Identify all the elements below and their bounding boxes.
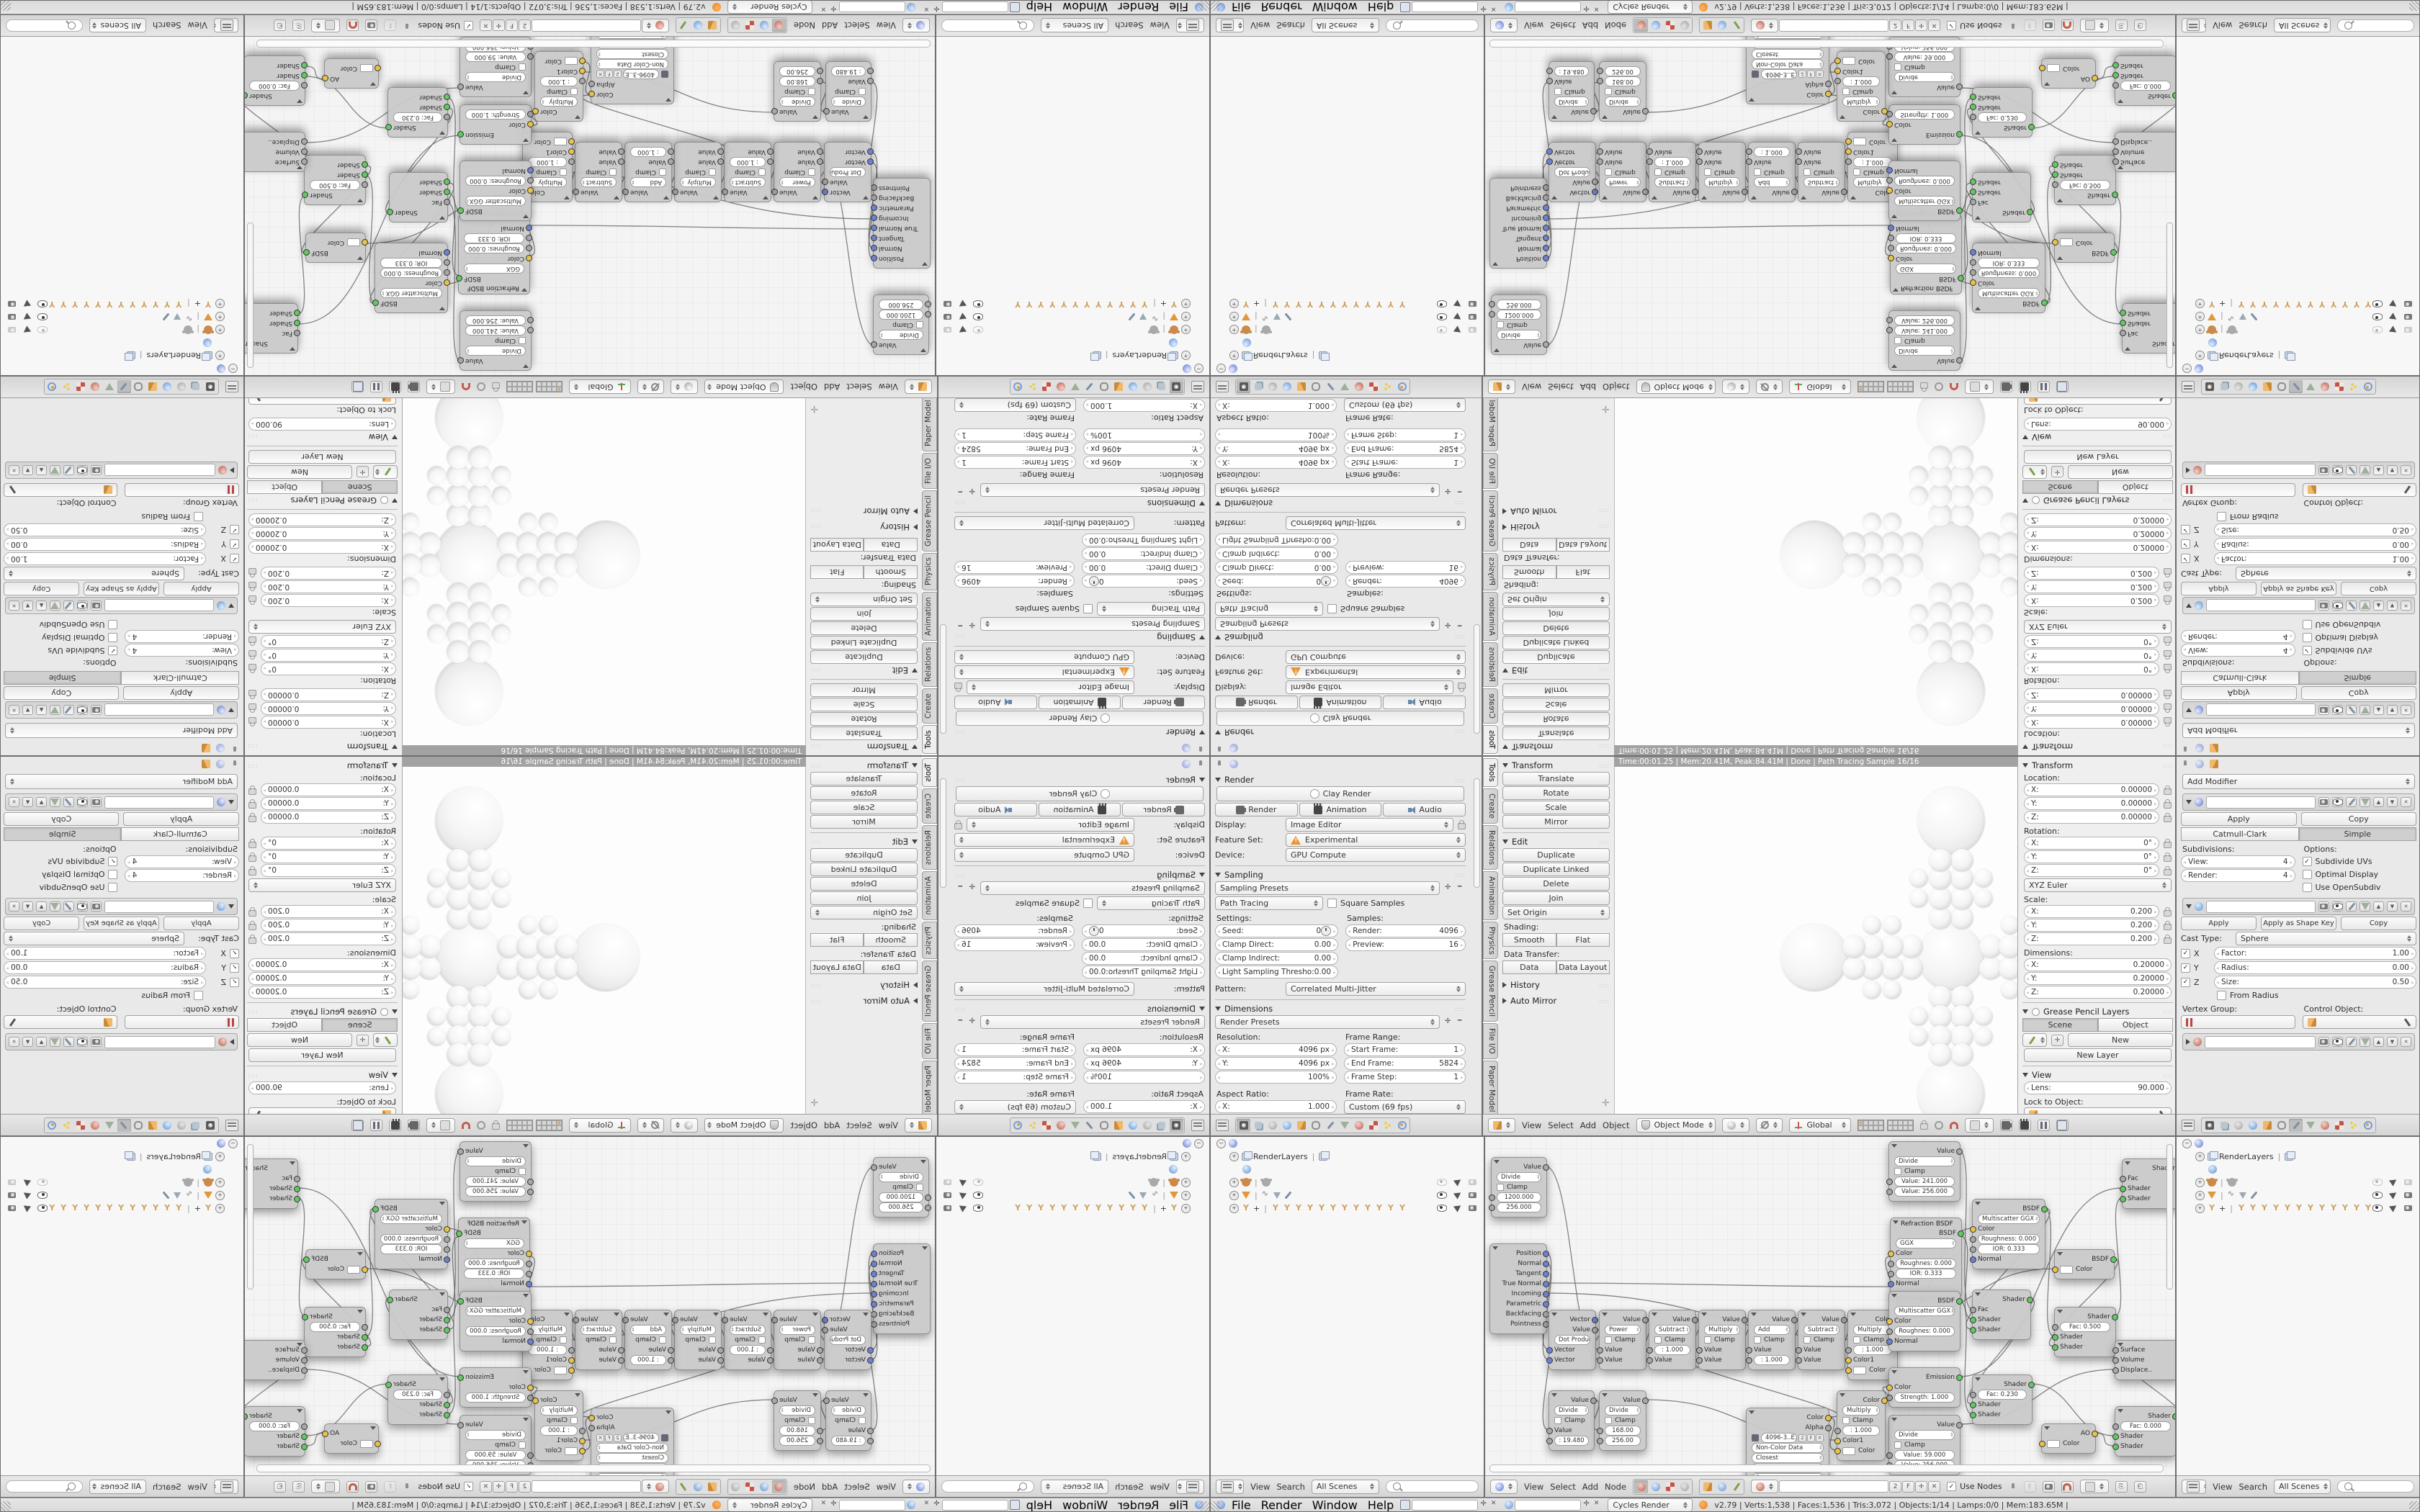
object-tab[interactable] <box>1112 1119 1126 1132</box>
node-select[interactable]: Subtract⇕ <box>730 177 766 187</box>
rotation-order-select[interactable]: XYZ Euler <box>248 620 396 634</box>
tool-shelf-tab-file-i-o[interactable]: File I/O <box>1483 453 1498 489</box>
physics-tab[interactable] <box>1011 1119 1025 1132</box>
device-select[interactable]: GPU Compute <box>954 848 1134 862</box>
number-slider[interactable]: End Frame:5824 <box>954 1057 1076 1070</box>
expand-icon[interactable]: + <box>2195 1152 2205 1161</box>
menu-select[interactable]: Select <box>1548 1120 1573 1130</box>
node-select[interactable]: Power⇕ <box>779 1325 815 1335</box>
editor-type-select[interactable] <box>905 1118 932 1133</box>
node-mdivv[interactable]: ValueDivide⇕ClampValue: 19.480 <box>825 1390 871 1451</box>
pivot-select[interactable] <box>1756 1118 1783 1133</box>
node-slider[interactable]: Roughnes: 0.000 <box>464 243 524 253</box>
number-slider[interactable]: Z:0.20000 <box>2024 986 2172 999</box>
restrict-toggle-icon[interactable] <box>944 301 951 307</box>
node-mixA[interactable]: ShaderFacShaderShader <box>1972 1290 2031 1340</box>
outliner-row[interactable] <box>936 1163 1209 1176</box>
set-origin-button[interactable]: Set Origin <box>1502 906 1610 919</box>
number-slider[interactable]: Seed:0 <box>1215 924 1338 937</box>
orientation-select[interactable]: Global <box>569 380 631 395</box>
restrict-toggle-icon[interactable] <box>973 313 983 320</box>
physics-tab[interactable] <box>45 381 59 394</box>
menu-view[interactable]: View <box>877 1482 896 1492</box>
node-slider[interactable]: Value: 59.000 <box>1894 1450 1955 1460</box>
world-tab[interactable] <box>1126 381 1140 394</box>
rotation-order-select[interactable]: XYZ Euler <box>2024 620 2172 634</box>
number-slider[interactable]: Render:4 <box>2181 630 2295 643</box>
duplicate-linked-button[interactable]: Duplicate Linked <box>1502 636 1610 649</box>
node-slider[interactable]: Roughnes: 0.000 <box>465 176 526 186</box>
menu-node[interactable]: Node <box>794 1482 815 1492</box>
number-slider[interactable]: Size:0.50 <box>4 523 206 536</box>
section-header[interactable]: Sampling:::: <box>954 870 1205 880</box>
tool-shelf-tab-physics[interactable]: Physics <box>1483 553 1498 591</box>
modifier-header[interactable]: ▲▼✕ <box>5 898 238 915</box>
modifier-name-field[interactable] <box>2206 901 2316 913</box>
axis-z-checkbox[interactable]: ✓Z <box>2181 526 2210 535</box>
expand-icon[interactable]: + <box>1229 1178 1239 1187</box>
subdivide-uvs-checkbox[interactable]: ✓Subdivide UVs <box>2303 644 2417 657</box>
layers-widget[interactable] <box>1857 382 1914 393</box>
texture-tab[interactable] <box>1040 381 1054 394</box>
snap-element-select[interactable] <box>426 380 455 395</box>
section-header[interactable]: Render:::: <box>954 727 1205 737</box>
number-slider[interactable]: Y:4096 px <box>1215 1057 1337 1070</box>
menu-render[interactable]: Render <box>1261 1 1302 14</box>
pin-icon[interactable] <box>2181 744 2190 752</box>
gp-tab-object[interactable]: Object <box>2098 1018 2174 1032</box>
snap-mode-select[interactable] <box>311 1480 340 1493</box>
shading-select[interactable] <box>1722 380 1749 395</box>
delete-modifier-button[interactable]: ✕ <box>2401 1037 2411 1047</box>
menu-add[interactable]: Add <box>824 382 840 392</box>
number-slider[interactable]: End Frame:5824 <box>954 442 1076 455</box>
display-toggle[interactable] <box>91 600 102 611</box>
magnet-button[interactable] <box>2061 20 2074 32</box>
tool-shelf-tab-tools[interactable]: Tools <box>1483 725 1498 754</box>
outliner-row[interactable] <box>2177 336 2419 349</box>
number-slider[interactable]: Z:0.00000 <box>261 811 396 824</box>
use-nodes-checkbox[interactable]: ✓Use Nodes <box>418 1482 473 1491</box>
apply-as-shape-key-button[interactable]: Apply as Shape Key <box>2261 917 2336 930</box>
number-slider[interactable]: Z:0.200 <box>261 932 396 945</box>
tool-shelf-tab-animation[interactable]: Animation <box>922 871 937 920</box>
mode-select[interactable]: Object Mode <box>704 380 784 395</box>
delete-button[interactable]: Delete <box>1502 877 1610 891</box>
axis-z-checkbox[interactable]: ✓Z <box>2181 978 2210 987</box>
pattern-select[interactable]: Correlated Multi-Jitter <box>1286 982 1466 996</box>
node-val1200[interactable]: ValueDivide⇕Clamp1200.000256.000 <box>1491 294 1547 355</box>
display-toggle[interactable] <box>2359 465 2370 475</box>
tree-type-world[interactable] <box>1649 19 1662 32</box>
outliner-row[interactable]: +| <box>2177 1176 2419 1189</box>
node-slider[interactable]: Value: 241.000 <box>1894 1176 1955 1187</box>
node-mmul[interactable]: ValueMultiply⇕ClampValueValue <box>674 142 722 202</box>
apply-button[interactable]: Apply <box>2181 686 2297 700</box>
screen-name-field[interactable] <box>942 1500 1008 1511</box>
node-output[interactable]: SurfaceVolumeDisplace.. <box>2115 132 2176 172</box>
node-slider[interactable]: 256.000 <box>1497 300 1541 310</box>
number-slider[interactable]: Seed:0 <box>1082 924 1205 937</box>
display-toggle[interactable] <box>91 465 102 475</box>
fake-user-button[interactable]: F <box>1902 1481 1914 1493</box>
node-output[interactable]: SurfaceVolumeDisplace.. <box>244 132 305 172</box>
node-slider[interactable]: Roughnes: 0.000 <box>1894 176 1955 186</box>
node-mixrgb2[interactable]: ColorMultiply⇕Clamp: 1.000Color1Color <box>534 1390 583 1461</box>
node-mmul[interactable]: ValueMultiply⇕ClampValueValue <box>1698 142 1746 202</box>
node-slider[interactable]: Fac: 0.230 <box>1978 112 2027 122</box>
render-tab[interactable] <box>1170 1119 1183 1132</box>
modifiers-tab[interactable] <box>2289 381 2303 394</box>
shader-type-world[interactable] <box>1715 1480 1729 1493</box>
use-opensubdiv-checkbox[interactable]: Use OpenSubdiv <box>2303 881 2417 894</box>
clapper-button[interactable] <box>389 1120 401 1131</box>
particles-tab[interactable] <box>2347 1119 2360 1132</box>
expand-icon[interactable]: − <box>1194 1139 1204 1148</box>
expand-icon[interactable]: − <box>2182 364 2192 374</box>
tool-shelf-tab-grease-pencil[interactable]: Grease Pencil <box>922 960 937 1022</box>
restrict-toggle-icon[interactable] <box>1437 1179 1447 1186</box>
gp-brush-select[interactable] <box>2022 1033 2047 1047</box>
number-slider[interactable]: Y:0.00000 <box>261 797 396 810</box>
node-select[interactable]: Power⇕ <box>779 177 815 187</box>
outliner-row[interactable]: ++| <box>936 297 1209 310</box>
unlink-button[interactable]: ✕ <box>1816 71 1824 78</box>
mirror-button[interactable]: Mirror <box>810 683 918 697</box>
tool-shelf-tab-tools[interactable]: Tools <box>922 725 937 754</box>
move-modifier-button[interactable]: ▼ <box>22 705 33 715</box>
menu-window[interactable]: Window <box>1062 1498 1108 1512</box>
display-toggle[interactable] <box>2359 1037 2370 1047</box>
particles-tab[interactable] <box>1026 1119 1039 1132</box>
number-slider[interactable]: X:0.20000 <box>2024 958 2172 971</box>
node-val1200[interactable]: ValueDivide⇕Clamp1200.000256.000 <box>873 1157 929 1218</box>
number-slider[interactable]: X:0.200 <box>261 594 396 607</box>
gp-add-button[interactable]: ✛ <box>357 467 369 478</box>
menu-object[interactable]: Object <box>1603 382 1629 392</box>
node-slider[interactable]: Fac: 0.230 <box>393 1390 442 1400</box>
number-slider[interactable]: Render:4 <box>125 630 240 643</box>
scale-button[interactable]: Scale <box>810 801 918 814</box>
node-slider[interactable]: : 19.480 <box>831 1436 866 1446</box>
restrict-toggle-icon[interactable] <box>2404 314 2412 320</box>
number-slider[interactable]: Clamp Direct:0.00 <box>1082 938 1205 951</box>
copy-paste-button[interactable]: ⎘ <box>292 20 305 32</box>
move-modifier-button[interactable]: ▲ <box>2373 600 2384 611</box>
restrict-toggle-icon[interactable] <box>2404 301 2412 307</box>
node-slider[interactable]: 256.00 <box>1605 1436 1641 1446</box>
modifier-name-field[interactable] <box>104 600 214 612</box>
modifier-name-field[interactable] <box>104 464 215 477</box>
node-msub1[interactable]: ValueSubtract⇕Clamp: 1.000Value <box>724 1310 771 1370</box>
node-glass2[interactable]: BSDFMultiscatter GGX⇕ColorRoughnes: 0.00… <box>460 161 532 221</box>
scene-tab[interactable] <box>2231 381 2245 394</box>
number-slider[interactable]: X:0.20000 <box>248 541 396 554</box>
collapsed-panel-history[interactable]: History:::: <box>1502 980 1610 990</box>
clapper-button[interactable] <box>2019 382 2031 393</box>
unlink-button[interactable]: ✕ <box>596 1434 604 1442</box>
screen-button[interactable] <box>2056 382 2069 393</box>
number-slider[interactable]: Frame Step:1 <box>1344 428 1466 441</box>
display-toggle[interactable] <box>91 1037 102 1047</box>
search-field[interactable] <box>941 1480 1034 1493</box>
section-header[interactable]: Sampling:::: <box>954 632 1205 642</box>
move-modifier-button[interactable]: ▼ <box>2387 901 2398 912</box>
screen-name-field[interactable] <box>942 2 1008 13</box>
fake-user-button[interactable]: F <box>506 1481 518 1493</box>
scene-tab[interactable] <box>175 1119 189 1132</box>
node-emission[interactable]: EmissionColorStrength: 1.000 <box>1888 104 1960 145</box>
outliner-row[interactable]: − <box>2177 362 2419 375</box>
delete-button[interactable]: Delete <box>810 621 918 635</box>
node-hscrollbar[interactable] <box>256 1464 931 1472</box>
restrict-toggle-icon[interactable] <box>1437 300 1447 307</box>
expand-icon[interactable]: + <box>2195 351 2205 361</box>
menu-view[interactable]: View <box>1150 21 1170 31</box>
modifier-header[interactable]: ▲▼✕ <box>2182 597 2415 614</box>
number-slider[interactable]: View:4 <box>125 644 240 657</box>
snap-element-select[interactable] <box>1965 1118 1994 1133</box>
node-select[interactable]: Subtract⇕ <box>1803 1325 1839 1335</box>
move-modifier-button[interactable]: ▼ <box>2387 705 2398 715</box>
add-icon[interactable] <box>932 3 941 12</box>
outliner-row[interactable]: +| <box>1 310 243 323</box>
delete-modifier-button[interactable]: ✕ <box>9 797 19 807</box>
data-tab[interactable] <box>1069 381 1083 394</box>
apply-button[interactable]: Apply <box>124 686 240 700</box>
number-slider[interactable]: Y:0.20000 <box>2024 972 2172 985</box>
number-slider[interactable]: Render:4 <box>125 869 240 882</box>
expand-icon[interactable]: + <box>2195 325 2205 335</box>
node-slider[interactable]: : 19.480 <box>1554 1436 1589 1446</box>
close-icon[interactable] <box>922 1500 931 1509</box>
number-slider[interactable]: X:1.000 <box>1215 399 1337 412</box>
screen-name-field[interactable] <box>1412 1500 1478 1511</box>
tool-shelf-tab-animation[interactable]: Animation <box>1483 871 1498 920</box>
pause-button[interactable] <box>370 382 382 393</box>
display-toggle[interactable] <box>2318 901 2329 912</box>
modifier-header[interactable]: ▲▼✕ <box>5 597 238 614</box>
number-slider[interactable]: Z:0° <box>2024 635 2159 648</box>
delete-modifier-button[interactable]: ✕ <box>2401 465 2411 475</box>
node-select[interactable]: GGX⇕ <box>1896 1238 1956 1248</box>
pin-icon[interactable] <box>230 760 239 768</box>
number-slider[interactable]: Clamp Indirect:0.00 <box>1215 952 1338 965</box>
material-tab[interactable] <box>1054 1119 1068 1132</box>
node-slider[interactable]: : 1.000 <box>528 157 567 167</box>
section-header[interactable]: Edit:::: <box>1502 665 1610 675</box>
properties-scrollbar[interactable] <box>940 624 946 734</box>
render-presets-select[interactable]: Render Presets <box>980 483 1205 497</box>
menu-select[interactable]: Select <box>1550 1482 1575 1492</box>
material-tab[interactable] <box>89 381 102 394</box>
node-select[interactable]: Divide⇕ <box>831 1405 866 1416</box>
pin-icon[interactable] <box>1196 760 1205 768</box>
editor-type-icon[interactable] <box>225 1120 238 1131</box>
node-mixrgb2[interactable]: ColorMultiply⇕Clamp: 1.000Color1Color <box>534 51 583 122</box>
number-slider[interactable]: Y:4096 px <box>1215 442 1337 455</box>
node-refr[interactable]: Refraction BSDFBSDFGGX⇕ColorRoughnes: 0.… <box>458 1218 530 1297</box>
node-mdivv[interactable]: ValueDivide⇕ClampValue: 19.480 <box>1549 1390 1595 1451</box>
close-icon[interactable] <box>819 1500 828 1509</box>
node-slider[interactable]: 168.00 <box>779 76 815 86</box>
move-modifier-button[interactable]: ▲ <box>36 797 47 807</box>
restrict-toggle-icon[interactable] <box>2389 300 2398 308</box>
move-modifier-button[interactable]: ▼ <box>2387 465 2398 475</box>
flat-button[interactable]: Flat <box>1556 933 1610 947</box>
number-slider[interactable]: Clamp Direct:0.00 <box>1082 561 1205 574</box>
restrict-toggle-icon[interactable] <box>973 1205 983 1212</box>
render-tab[interactable] <box>1237 381 1250 394</box>
copy-button[interactable]: Copy <box>4 812 120 826</box>
menu-view[interactable]: View <box>877 21 896 31</box>
delete-modifier-button[interactable]: ✕ <box>9 705 19 715</box>
menu-search[interactable]: Search <box>2238 21 2267 31</box>
close-icon[interactable] <box>819 3 828 12</box>
tool-shelf-tab-file-i-o[interactable]: File I/O <box>922 453 937 489</box>
section-header[interactable]: Edit:::: <box>1502 837 1610 847</box>
expand-icon[interactable]: + <box>1181 312 1191 322</box>
node-bsdfP[interactable]: BSDFColor <box>2054 1249 2115 1279</box>
node-slider[interactable]: IOR: 0.333 <box>1896 1269 1956 1279</box>
number-slider[interactable]: Start Frame:1 <box>1344 1043 1466 1056</box>
translate-button[interactable]: Translate <box>1502 772 1610 786</box>
editor-type-select[interactable] <box>1488 380 1515 395</box>
number-slider[interactable]: X:4096 px <box>1083 456 1205 469</box>
outliner-row[interactable]: − <box>1 1137 243 1150</box>
collapsed-panel-history[interactable]: History:::: <box>810 980 918 990</box>
square-samples-checkbox[interactable]: Square Samples <box>1327 899 1404 908</box>
number-slider[interactable]: X:1.000 <box>1083 399 1205 412</box>
number-slider[interactable]: Seed:0 <box>1082 575 1205 588</box>
pin-icon[interactable] <box>2009 1482 2017 1491</box>
set-origin-button[interactable]: Set Origin <box>810 906 918 919</box>
number-slider[interactable]: X:1.000 <box>1083 1100 1205 1113</box>
restrict-toggle-icon[interactable] <box>1437 1205 1447 1212</box>
physics-tab[interactable] <box>2361 381 2375 394</box>
node-slider[interactable]: Roughness: 0.000 <box>380 1234 442 1244</box>
outliner-row[interactable]: +| <box>1 1176 243 1189</box>
menu-search[interactable]: Search <box>1115 21 1144 31</box>
section-header[interactable]: Transform:::: <box>1502 760 1610 770</box>
object-tab[interactable] <box>2260 1119 2274 1132</box>
tree-type-world[interactable] <box>758 19 771 32</box>
menu-view[interactable]: View <box>1524 21 1543 31</box>
render-button[interactable]: Render <box>1215 803 1298 816</box>
display-toggle[interactable] <box>2359 901 2370 912</box>
node-mixA[interactable]: ShaderFacShaderShader <box>389 1290 448 1340</box>
outliner-row[interactable]: − <box>936 1137 1209 1150</box>
shader-type-pencil[interactable] <box>677 1480 691 1493</box>
shader-type-world[interactable] <box>691 1480 705 1493</box>
clay-render-button[interactable]: Clay Render <box>1216 711 1464 726</box>
fake-user-button[interactable]: F <box>1807 1434 1815 1442</box>
camera2-button[interactable] <box>365 1481 377 1493</box>
copy-button[interactable]: Copy <box>2301 812 2417 826</box>
properties-scrollbar[interactable] <box>940 778 946 888</box>
menu-select[interactable]: Select <box>1550 21 1575 31</box>
data-layout-button[interactable]: Data Layout <box>1556 538 1610 552</box>
section-header[interactable]: Edit:::: <box>810 837 918 847</box>
featureset-select[interactable]: Experimental <box>954 665 1134 679</box>
display-toggle[interactable] <box>2332 797 2343 807</box>
tool-shelf-tab-paper-model[interactable]: Paper Model <box>922 1061 937 1117</box>
expand-icon[interactable]: + <box>2195 312 2205 322</box>
section-header[interactable]: Grease Pencil Layers:::: <box>247 495 398 505</box>
node-select[interactable]: Multiscatter GGX⇕ <box>465 1306 526 1316</box>
lens-slider[interactable]: Lens:90.000 <box>2024 418 2172 431</box>
display-select[interactable]: Image Editor <box>967 680 1134 694</box>
material-datablock[interactable]: 2F✛✕ <box>1751 1480 1940 1493</box>
move-modifier-button[interactable]: ▲ <box>2373 465 2384 475</box>
number-slider[interactable]: Size:0.50 <box>4 976 206 989</box>
use-opensubdiv-checkbox[interactable]: Use OpenSubdiv <box>2303 618 2417 631</box>
image-name-field[interactable]: 4096-3..E.. <box>1761 1433 1797 1443</box>
node-select[interactable]: Non-Color Data⇕ <box>1752 1443 1824 1453</box>
restrict-toggle-icon[interactable] <box>944 1179 951 1185</box>
screen-layout-selector[interactable] <box>1400 2 1498 13</box>
menu-render[interactable]: Render <box>1118 1 1159 14</box>
copy-paste-button[interactable]: ⎗ <box>274 20 286 32</box>
outliner-row[interactable]: +| <box>936 310 1209 323</box>
cast-type-select[interactable]: Sphere <box>4 932 184 945</box>
add-material-button[interactable]: ✛ <box>1915 1481 1927 1493</box>
outliner-row[interactable] <box>2177 1163 2419 1176</box>
menu-search[interactable]: Search <box>153 21 181 31</box>
node-hscrollbar[interactable] <box>1489 40 2164 48</box>
subdiv-type-simple[interactable]: Simple <box>2299 827 2417 841</box>
from-radius-checkbox[interactable]: From Radius <box>2217 512 2415 521</box>
restrict-toggle-icon[interactable] <box>2389 1204 2398 1212</box>
texture-tab[interactable] <box>74 1119 88 1132</box>
menu-help[interactable]: Help <box>1368 1498 1394 1512</box>
outliner-row[interactable]: +| <box>1211 1189 1484 1202</box>
node-madd[interactable]: ValueAdd⇕ClampValue: 1.000 <box>1748 1310 1796 1370</box>
copy-paste-button[interactable]: ⎘ <box>2115 1481 2128 1493</box>
display-toggle[interactable] <box>2359 797 2370 807</box>
restrict-toggle-icon[interactable] <box>1453 312 1462 321</box>
pivot-select[interactable] <box>637 1118 664 1133</box>
outliner-row[interactable]: +| <box>936 323 1209 336</box>
menu-file[interactable]: File <box>1232 1 1251 14</box>
data-tab[interactable] <box>1069 1119 1083 1132</box>
duplicate-linked-button[interactable]: Duplicate Linked <box>810 636 918 649</box>
users-count[interactable]: 2 <box>614 1434 622 1442</box>
add-modifier-select[interactable]: Add Modifier <box>2182 774 2415 789</box>
data-tab[interactable] <box>1337 381 1351 394</box>
go-parent-button[interactable]: ⇧ <box>2024 1481 2036 1493</box>
node-mixB500[interactable]: ShaderFac: 0.500ShaderShader <box>2054 1307 2116 1357</box>
restrict-toggle-icon[interactable] <box>944 1192 951 1198</box>
menu-search[interactable]: Search <box>1115 1482 1144 1492</box>
node-select[interactable]: Power⇕ <box>1605 1325 1641 1335</box>
node-select[interactable]: Multiscatter GGX⇕ <box>1978 1214 2040 1224</box>
layers-widget[interactable] <box>506 382 563 393</box>
restrict-toggle-icon[interactable] <box>2372 1179 2383 1186</box>
node-slider[interactable]: Fac: 0.500 <box>2060 1322 2110 1332</box>
section-header[interactable]: Render:::: <box>954 775 1205 785</box>
gp-tab-object[interactable]: Object <box>2098 480 2174 494</box>
display-toggle[interactable] <box>50 797 60 807</box>
axis-x-checkbox[interactable]: ✓X <box>2181 554 2210 564</box>
particles-tab[interactable] <box>60 381 73 394</box>
apply-button[interactable]: Apply <box>2181 812 2297 826</box>
apply-as-shape-key-button[interactable]: Apply as Shape Key <box>84 917 159 930</box>
display-scope-select[interactable]: All Scenes <box>1312 19 1379 33</box>
pin-icon[interactable] <box>403 1482 411 1491</box>
display-toggle[interactable] <box>77 705 88 715</box>
outliner-row[interactable]: +| <box>2177 323 2419 336</box>
